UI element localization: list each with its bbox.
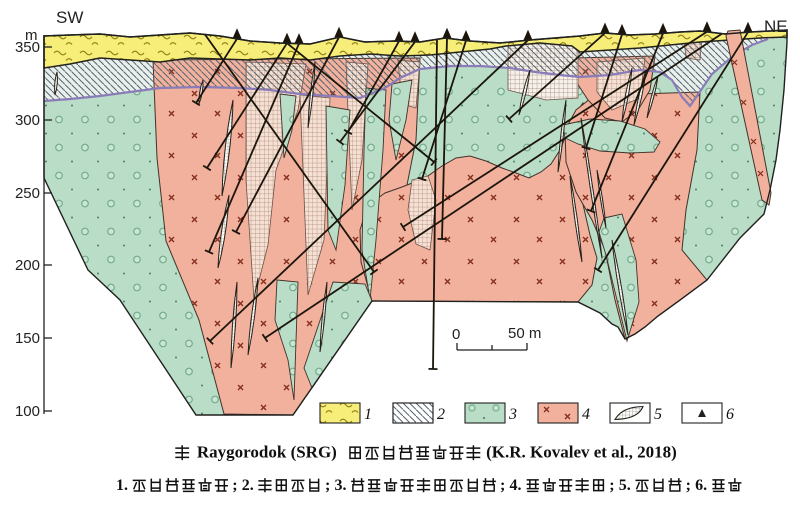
svg-text:200: 200 [15,257,40,274]
svg-text:3.: 3. [335,477,347,494]
svg-text:50 m: 50 m [508,325,541,342]
svg-text:;: ; [232,477,237,494]
svg-text:5.: 5. [619,477,631,494]
svg-text:0: 0 [452,326,460,343]
svg-text:;: ; [609,477,614,494]
svg-text:SW: SW [56,8,83,27]
svg-text:5: 5 [654,406,662,423]
svg-text:250: 250 [15,185,40,202]
svg-text:1: 1 [364,406,372,423]
svg-text:4.: 4. [510,477,522,494]
svg-text:(K.R. Kovalev et al., 2018): (K.R. Kovalev et al., 2018) [486,443,677,462]
svg-text:2.: 2. [242,477,254,494]
svg-text:;: ; [500,477,505,494]
svg-text:3: 3 [508,406,517,423]
svg-text:4: 4 [582,406,590,423]
svg-text:Raygorodok (SRG): Raygorodok (SRG) [197,443,337,462]
svg-text:;: ; [686,477,691,494]
svg-text:6.: 6. [695,477,707,494]
svg-text:150: 150 [15,330,40,347]
svg-text:1.: 1. [116,477,128,494]
svg-text:NE: NE [764,17,788,36]
svg-text:100: 100 [15,403,40,420]
svg-text:;: ; [325,477,330,494]
svg-text:6: 6 [726,406,734,423]
svg-text:2: 2 [437,406,445,423]
svg-text:300: 300 [15,112,40,129]
svg-text:m: m [25,27,38,44]
